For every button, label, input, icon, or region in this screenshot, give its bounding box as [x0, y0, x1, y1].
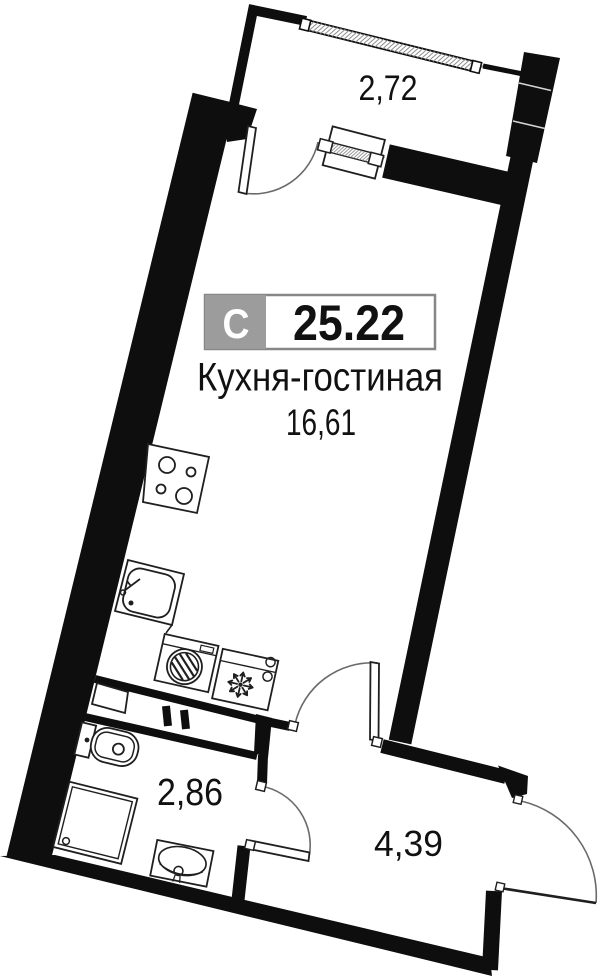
- svg-text:16,61: 16,61: [286, 402, 356, 443]
- svg-text:4,39: 4,39: [374, 823, 443, 864]
- svg-text:2,72: 2,72: [359, 69, 418, 108]
- svg-text:2,86: 2,86: [157, 772, 223, 814]
- svg-text:25.22: 25.22: [293, 295, 405, 351]
- svg-text:С: С: [223, 300, 250, 347]
- svg-text:Кухня-гостиная: Кухня-гостиная: [197, 356, 443, 400]
